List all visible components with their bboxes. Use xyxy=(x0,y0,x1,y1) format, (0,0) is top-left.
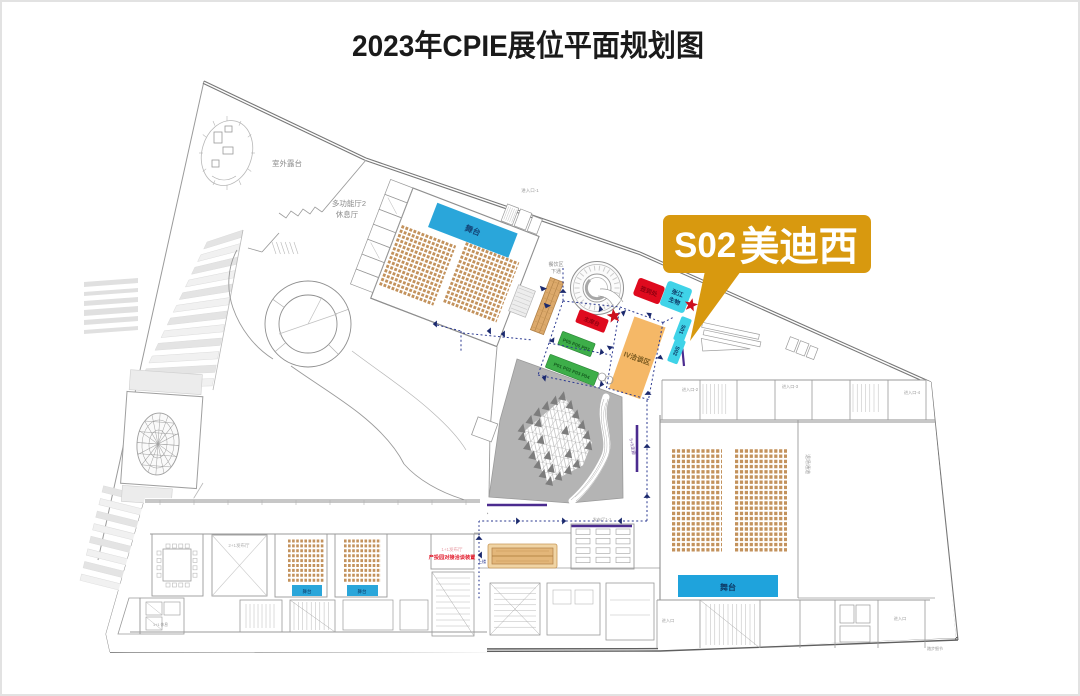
svg-text:上楼: 上楼 xyxy=(478,558,486,565)
svg-text:餐饮区: 餐饮区 xyxy=(548,261,563,268)
svg-text:舞台: 舞台 xyxy=(358,588,367,595)
svg-text:舞台: 舞台 xyxy=(303,588,312,595)
svg-text:多功能厅2: 多功能厅2 xyxy=(332,198,366,208)
svg-text:1+1发布厅: 1+1发布厅 xyxy=(441,546,463,553)
svg-text:进入口-4: 进入口-4 xyxy=(904,389,921,396)
svg-text:2+1发布厅: 2+1发布厅 xyxy=(228,542,250,549)
svg-text:美迪西: 美迪西 xyxy=(740,225,858,269)
svg-text:2023年CPIE展位平面规划图: 2023年CPIE展位平面规划图 xyxy=(352,29,704,63)
svg-text:1+1 休息: 1+1 休息 xyxy=(153,622,168,627)
svg-text:退场通道: 退场通道 xyxy=(804,454,811,474)
svg-text:S02: S02 xyxy=(674,226,736,265)
svg-text:下通: 下通 xyxy=(551,268,561,275)
svg-text:踏步细节: 踏步细节 xyxy=(927,645,943,651)
svg-text:发布厅1-1: 发布厅1-1 xyxy=(593,516,612,523)
svg-text:休息厅: 休息厅 xyxy=(336,209,359,219)
svg-text:进入口-2: 进入口-2 xyxy=(682,386,699,393)
svg-text:产投园对接洽谈装置: 产投园对接洽谈装置 xyxy=(429,553,476,561)
svg-text:进入口-1: 进入口-1 xyxy=(521,187,539,194)
svg-text:室外露台: 室外露台 xyxy=(272,158,302,168)
svg-text:舞台: 舞台 xyxy=(719,582,736,592)
svg-text:进入口-3: 进入口-3 xyxy=(782,383,799,390)
svg-text:进入口: 进入口 xyxy=(662,617,675,624)
svg-text:进入口: 进入口 xyxy=(894,615,907,622)
